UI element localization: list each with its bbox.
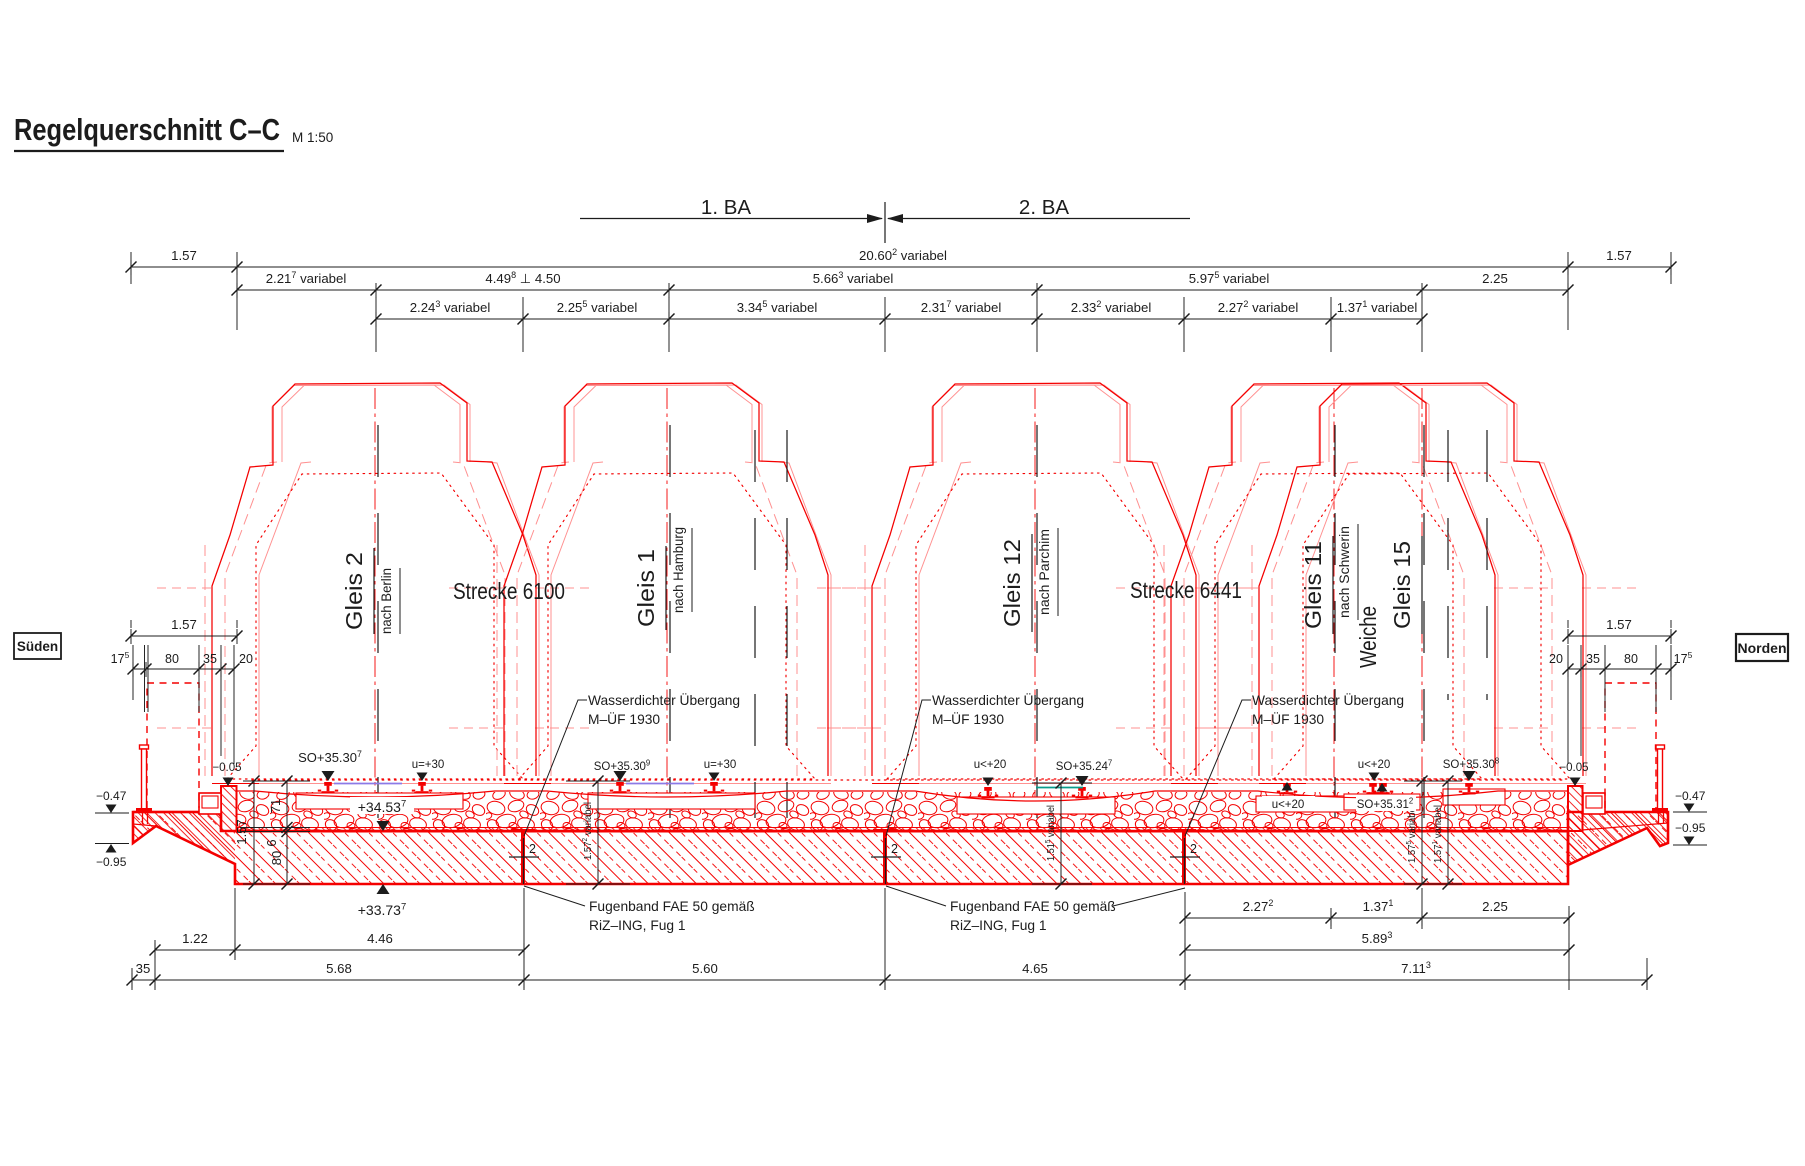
svg-text:20: 20 [239,652,253,666]
svg-text:Weiche: Weiche [1355,606,1381,668]
svg-text:2.217 variabel: 2.217 variabel [266,270,347,286]
svg-text:u<+20: u<+20 [974,759,1007,771]
svg-text:Strecke 6100: Strecke 6100 [453,578,565,604]
svg-text:RiZ–ING, Fug 1: RiZ–ING, Fug 1 [589,918,686,933]
svg-text:80: 80 [269,851,284,865]
svg-text:2.272 variabel: 2.272 variabel [1218,299,1299,315]
svg-text:35: 35 [136,961,151,976]
svg-text:2. BA: 2. BA [1019,196,1069,219]
svg-text:Wasserdichter Übergang: Wasserdichter Übergang [1252,691,1404,708]
svg-text:Fugenband FAE 50 gemäß: Fugenband FAE 50 gemäß [950,899,1116,914]
svg-text:1.515 variabel: 1.515 variabel [1044,805,1057,861]
svg-text:2.243 variabel: 2.243 variabel [410,299,491,315]
svg-text:M–ÜF 1930: M–ÜF 1930 [1252,710,1324,727]
svg-text:SO+35.308: SO+35.308 [1443,757,1499,771]
svg-text:M 1:50: M 1:50 [292,130,333,145]
svg-text:1.57: 1.57 [171,617,197,632]
svg-text:nach Berlin: nach Berlin [379,568,394,634]
svg-text:SO+35.307: SO+35.307 [298,749,362,765]
svg-text:Gleis 11: Gleis 11 [1300,541,1326,629]
svg-text:5.975 variabel: 5.975 variabel [1189,270,1270,286]
svg-text:−0.47: −0.47 [96,789,127,803]
svg-text:nach Hamburg: nach Hamburg [671,527,686,613]
svg-text:1.57: 1.57 [234,819,249,844]
svg-text:20: 20 [1549,652,1563,666]
svg-text:2.332 variabel: 2.332 variabel [1071,299,1152,315]
svg-text:RiZ–ING, Fug 1: RiZ–ING, Fug 1 [950,918,1047,933]
svg-text:Wasserdichter Übergang: Wasserdichter Übergang [932,691,1084,708]
svg-text:2.25: 2.25 [1482,271,1508,286]
svg-text:2.25: 2.25 [1482,899,1508,914]
svg-text:−0.47: −0.47 [1675,789,1706,803]
svg-text:+33.737: +33.737 [358,902,407,918]
svg-text:Gleis 15: Gleis 15 [1389,541,1415,629]
svg-text:Gleis 2: Gleis 2 [341,552,367,630]
svg-text:−0.05: −0.05 [1559,762,1588,774]
svg-text:2: 2 [891,842,898,856]
svg-text:80: 80 [1624,652,1638,666]
svg-text:5.60: 5.60 [692,961,718,976]
svg-text:5.663 variabel: 5.663 variabel [813,270,894,286]
svg-text:1.371 variabel: 1.371 variabel [1337,299,1418,315]
svg-text:Wasserdichter Übergang: Wasserdichter Übergang [588,691,740,708]
svg-text:nach Schwerin: nach Schwerin [1337,526,1352,618]
svg-text:1.57: 1.57 [1606,617,1632,632]
svg-text:1. BA: 1. BA [701,196,751,219]
svg-text:Strecke 6441: Strecke 6441 [1130,577,1242,603]
svg-text:nach Parchim: nach Parchim [1037,529,1052,615]
svg-text:71: 71 [268,799,283,813]
svg-text:6: 6 [264,839,279,846]
svg-text:4.65: 4.65 [1022,961,1048,976]
svg-text:5.68: 5.68 [326,961,352,976]
svg-text:2: 2 [1190,842,1197,856]
svg-text:M–ÜF 1930: M–ÜF 1930 [588,710,660,727]
svg-text:Gleis 12: Gleis 12 [999,539,1025,627]
svg-text:Gleis 1: Gleis 1 [633,549,659,627]
svg-text:M–ÜF 1930: M–ÜF 1930 [932,710,1004,727]
svg-text:1.57: 1.57 [171,248,197,263]
svg-text:Regelquerschnitt C–C: Regelquerschnitt C–C [14,112,280,147]
svg-text:1.22: 1.22 [182,931,208,946]
svg-text:Norden: Norden [1738,640,1787,656]
svg-text:80: 80 [165,652,179,666]
svg-text:2: 2 [529,842,536,856]
svg-text:2.317 variabel: 2.317 variabel [921,299,1002,315]
svg-text:u<+20: u<+20 [1272,799,1305,811]
svg-text:1.571 variabel: 1.571 variabel [1431,805,1444,863]
svg-text:1.57: 1.57 [1606,248,1632,263]
svg-text:3.345 variabel: 3.345 variabel [737,299,818,315]
svg-text:4.46: 4.46 [367,931,393,946]
svg-text:−0.95: −0.95 [1675,821,1706,835]
svg-text:20.602 variabel: 20.602 variabel [859,247,947,263]
svg-text:Fugenband FAE 50 gemäß: Fugenband FAE 50 gemäß [589,899,755,914]
svg-text:SO+35.309: SO+35.309 [594,759,650,773]
svg-text:SO+35.312: SO+35.312 [1357,797,1413,811]
svg-text:−0.95: −0.95 [96,855,127,869]
svg-text:35: 35 [1586,652,1600,666]
svg-text:1.572 variabel: 1.572 variabel [581,802,594,860]
svg-text:4.498 ⊥ 4.50: 4.498 ⊥ 4.50 [485,270,560,286]
svg-text:u=+30: u=+30 [704,759,737,771]
svg-text:+34.537: +34.537 [358,799,407,815]
svg-text:u<+20: u<+20 [1358,759,1391,771]
svg-text:2.255 variabel: 2.255 variabel [557,299,638,315]
svg-text:Süden: Süden [17,639,58,654]
svg-text:u=+30: u=+30 [412,759,445,771]
svg-text:35: 35 [203,652,217,666]
svg-text:1.575 variabel: 1.575 variabel [1405,805,1418,863]
svg-text:SO+35.247: SO+35.247 [1056,759,1112,773]
svg-text:−0.05: −0.05 [212,762,241,774]
